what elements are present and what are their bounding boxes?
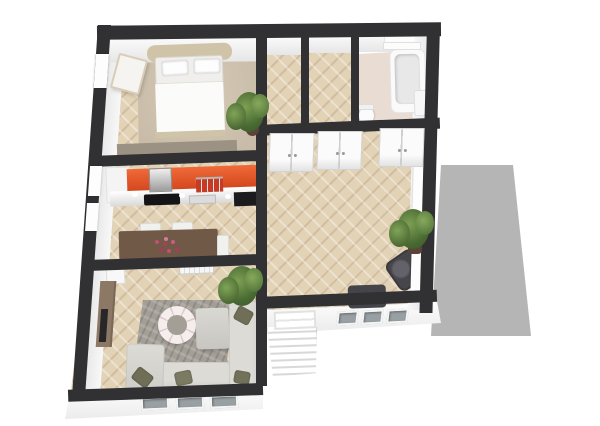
kitchen-knob-1 <box>132 192 138 197</box>
hallway-divider-2 <box>351 32 359 131</box>
center-wall <box>256 25 267 386</box>
flower-centerpiece <box>155 240 159 244</box>
great-room-south-window-3 <box>386 308 409 323</box>
great-room-double-door-2 <box>316 131 362 170</box>
terrace <box>428 163 533 338</box>
range-hood <box>149 168 173 193</box>
toilet-tank <box>358 104 374 110</box>
entry-stairs <box>265 325 321 377</box>
living-room-plant <box>226 266 258 306</box>
bed-pillow-left <box>160 59 189 77</box>
great-room-south-window-2 <box>361 309 384 324</box>
hallway-divider-1 <box>301 34 309 133</box>
great-room-plant <box>397 209 429 249</box>
kitchen-knob-3 <box>225 194 231 199</box>
kitchen-black-oven <box>234 192 257 207</box>
round-wreath-decor <box>158 306 196 344</box>
cooktop <box>144 193 180 205</box>
bedroom-west-window <box>94 54 109 88</box>
kitchen-knob-2 <box>179 193 185 198</box>
kitchen-west-window-1 <box>88 166 102 196</box>
hallway-left-floor <box>266 54 301 133</box>
great-room-double-door-1 <box>268 133 314 172</box>
great-room-double-door-3 <box>378 128 424 167</box>
north-wall-face-hallway-left <box>266 36 301 55</box>
stair-railing <box>274 310 317 330</box>
kitchen-red-shelf <box>196 177 224 193</box>
towel-rail <box>383 42 421 50</box>
hallway-right-floor <box>309 52 351 131</box>
ottoman <box>195 308 229 350</box>
dining-chair-3 <box>217 235 229 257</box>
great-room-south-window-1 <box>336 310 359 325</box>
floor-plan <box>0 0 600 426</box>
bedroom-plant <box>234 92 264 132</box>
bed-duvet <box>155 81 225 135</box>
kitchen-small-appliance <box>189 195 216 205</box>
kitchen-west-window-2 <box>85 203 99 231</box>
bed-pillow-right <box>193 58 222 75</box>
